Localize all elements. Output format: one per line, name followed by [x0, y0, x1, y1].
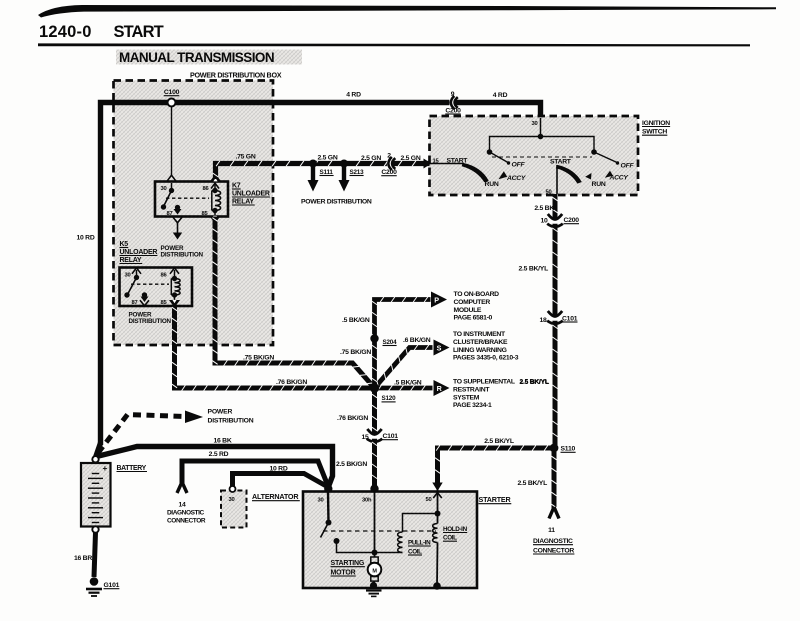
svg-text:TO INSTRUMENT: TO INSTRUMENT: [453, 331, 506, 338]
svg-text:15: 15: [361, 434, 369, 441]
svg-text:RELAY: RELAY: [232, 198, 254, 205]
svg-text:30: 30: [125, 272, 131, 278]
svg-text:C200: C200: [564, 217, 580, 224]
svg-text:2.5 BK: 2.5 BK: [534, 205, 554, 212]
svg-text:30: 30: [318, 497, 324, 503]
svg-text:4 RD: 4 RD: [493, 92, 508, 99]
svg-text:50: 50: [546, 190, 552, 196]
svg-text:30: 30: [532, 121, 538, 127]
svg-text:2.5 GN: 2.5 GN: [317, 155, 337, 162]
svg-text:.6 BK/GN: .6 BK/GN: [403, 337, 431, 344]
svg-text:CONNECTOR: CONNECTOR: [533, 547, 574, 554]
svg-text:.76 BK/GN: .76 BK/GN: [276, 379, 307, 386]
svg-text:UNLOADER: UNLOADER: [120, 249, 158, 256]
svg-text:.5 BK/GN: .5 BK/GN: [394, 379, 422, 386]
svg-text:2.5 BK/YL: 2.5 BK/YL: [519, 266, 549, 273]
svg-text:ACCY: ACCY: [506, 175, 527, 182]
svg-text:HOLD-IN: HOLD-IN: [443, 526, 468, 533]
svg-text:4 RD: 4 RD: [346, 92, 361, 99]
svg-text:DIAGNOSTIC: DIAGNOSTIC: [533, 538, 573, 545]
svg-text:2.5 GN: 2.5 GN: [361, 155, 381, 162]
svg-text:TO SUPPLEMENTAL: TO SUPPLEMENTAL: [453, 379, 515, 386]
svg-text:DISTRIBUTION: DISTRIBUTION: [208, 418, 254, 425]
svg-text:2.5 BK/GN: 2.5 BK/GN: [336, 461, 367, 468]
svg-text:POWER DISTRIBUTION BOX: POWER DISTRIBUTION BOX: [190, 71, 282, 80]
svg-text:87: 87: [167, 211, 173, 217]
svg-text:PULL-IN: PULL-IN: [408, 539, 431, 546]
svg-text:STARTING: STARTING: [331, 560, 365, 567]
svg-text:C101: C101: [562, 315, 578, 322]
svg-text:COIL: COIL: [443, 535, 457, 542]
svg-text:PAGE 3234-1: PAGE 3234-1: [453, 402, 492, 409]
svg-text:POWER: POWER: [208, 408, 233, 415]
svg-text:85: 85: [202, 211, 209, 217]
svg-text:2.5 BK/YL: 2.5 BK/YL: [519, 379, 548, 386]
svg-text:2.5 BK/YL: 2.5 BK/YL: [484, 438, 514, 445]
svg-text:50: 50: [426, 497, 432, 503]
svg-text:S110: S110: [561, 446, 576, 453]
svg-text:RELAY: RELAY: [120, 257, 142, 264]
svg-text:DISTRIBUTION: DISTRIBUTION: [129, 318, 172, 325]
svg-text:18: 18: [539, 317, 547, 324]
svg-text:S204: S204: [383, 339, 398, 346]
svg-text:RUN: RUN: [592, 181, 606, 188]
svg-text:COMPUTER: COMPUTER: [454, 299, 491, 306]
svg-text:POWER DISTRIBUTION: POWER DISTRIBUTION: [301, 198, 372, 205]
svg-text:2: 2: [387, 153, 391, 160]
svg-text:10: 10: [540, 218, 548, 225]
svg-text:COIL: COIL: [408, 548, 422, 555]
svg-text:86: 86: [203, 186, 210, 192]
svg-text:.75 GN: .75 GN: [235, 153, 255, 160]
svg-text:SYSTEM: SYSTEM: [453, 394, 480, 401]
svg-text:STARTER: STARTER: [479, 495, 512, 504]
svg-text:.75 BK/GN: .75 BK/GN: [340, 349, 371, 356]
svg-text:P: P: [434, 295, 439, 304]
svg-text:RESTRAINT: RESTRAINT: [453, 387, 490, 394]
svg-text:PAGE 6581-0: PAGE 6581-0: [454, 315, 493, 322]
svg-text:PAGES 3435-0, 6210-3: PAGES 3435-0, 6210-3: [453, 355, 519, 362]
svg-text:S111: S111: [320, 169, 334, 176]
svg-text:MOTOR: MOTOR: [331, 569, 356, 576]
svg-text:ALTERNATOR: ALTERNATOR: [252, 492, 299, 501]
svg-text:CLUSTER/BRAKE: CLUSTER/BRAKE: [453, 339, 508, 346]
svg-text:START: START: [114, 23, 164, 41]
svg-text:30: 30: [161, 186, 167, 192]
svg-text:MANUAL TRANSMISSION: MANUAL TRANSMISSION: [119, 50, 274, 65]
svg-text:G101: G101: [104, 582, 120, 589]
svg-text:CONNECTOR: CONNECTOR: [167, 517, 206, 524]
svg-text:11: 11: [548, 527, 555, 534]
svg-text:.75 BK/GN: .75 BK/GN: [243, 355, 274, 362]
svg-text:START: START: [550, 159, 572, 166]
svg-text:IGNITION: IGNITION: [642, 120, 670, 127]
svg-text:S213: S213: [350, 169, 365, 176]
svg-text:MODULE: MODULE: [454, 307, 482, 314]
svg-text:OFF: OFF: [621, 162, 635, 169]
svg-text:LINING WARNING: LINING WARNING: [453, 347, 507, 354]
svg-text:+: +: [103, 464, 108, 473]
svg-text:10 RD: 10 RD: [76, 234, 94, 241]
svg-text:10 RD: 10 RD: [269, 465, 287, 472]
svg-text:SWITCH: SWITCH: [642, 129, 667, 136]
svg-text:2.5 RD: 2.5 RD: [209, 451, 229, 458]
svg-text:30: 30: [229, 497, 235, 503]
svg-text:16 BK: 16 BK: [213, 438, 231, 445]
svg-text:.76 BK/GN: .76 BK/GN: [337, 415, 368, 422]
svg-text:OFF: OFF: [512, 161, 526, 168]
svg-text:C100: C100: [164, 89, 180, 96]
svg-text:ACCY: ACCY: [609, 174, 630, 181]
svg-text:RUN: RUN: [485, 181, 499, 188]
svg-text:C200: C200: [445, 107, 461, 114]
svg-text:15: 15: [433, 159, 440, 165]
svg-text:2.5 GN: 2.5 GN: [400, 155, 420, 162]
svg-text:86: 86: [161, 272, 168, 278]
svg-text:14: 14: [178, 501, 186, 508]
svg-text:DISTRIBUTION: DISTRIBUTION: [161, 252, 204, 259]
svg-text:S: S: [437, 343, 442, 352]
svg-text:UNLOADER: UNLOADER: [232, 190, 270, 197]
svg-text:BATTERY: BATTERY: [117, 465, 147, 472]
svg-text:16 BR: 16 BR: [74, 555, 92, 562]
svg-text:K5: K5: [120, 241, 129, 248]
svg-text:85: 85: [161, 300, 168, 306]
svg-text:S120: S120: [382, 395, 397, 402]
svg-text:K7: K7: [232, 182, 241, 189]
svg-text:C101: C101: [383, 433, 399, 440]
svg-text:TO ON-BOARD: TO ON-BOARD: [454, 291, 500, 298]
svg-text:87: 87: [132, 300, 138, 306]
svg-text:C200: C200: [381, 169, 397, 176]
svg-text:9: 9: [451, 91, 455, 98]
svg-text:30h: 30h: [362, 497, 372, 503]
svg-text:M: M: [372, 568, 377, 574]
svg-text:.5 BK/GN: .5 BK/GN: [342, 317, 370, 324]
svg-text:1240-0: 1240-0: [39, 23, 92, 41]
svg-text:DIAGNOSTIC: DIAGNOSTIC: [167, 509, 205, 516]
svg-text:2.5 BK/YL: 2.5 BK/YL: [518, 480, 548, 487]
